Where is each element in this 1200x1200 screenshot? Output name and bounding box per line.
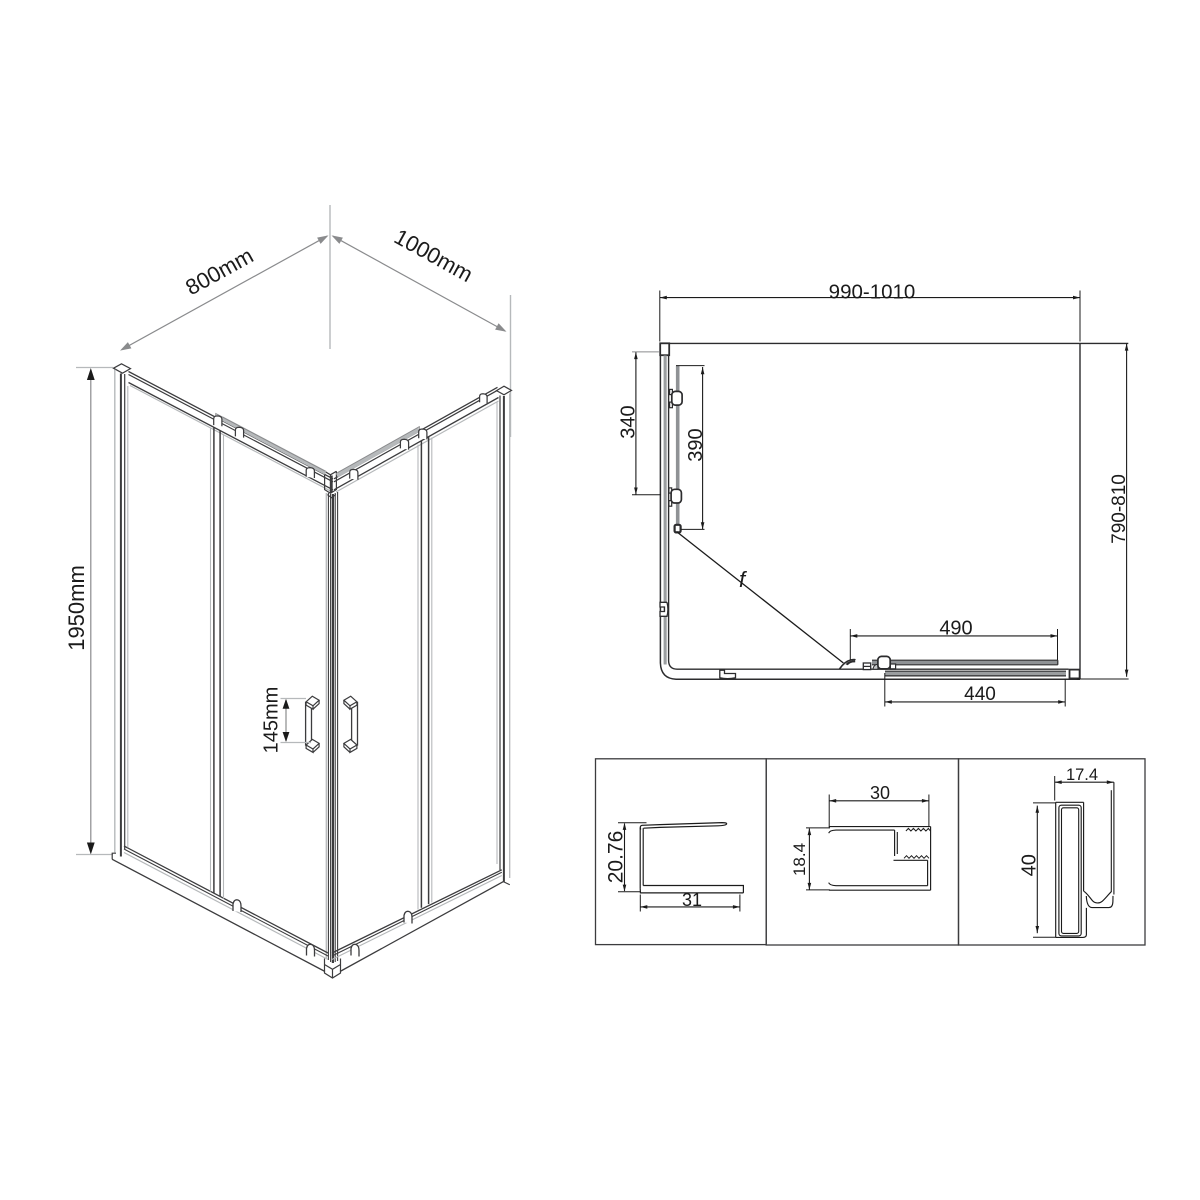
- svg-text:20.76: 20.76: [605, 831, 628, 884]
- svg-text:440: 440: [964, 684, 996, 705]
- svg-text:145mm: 145mm: [261, 687, 283, 754]
- svg-text:1950mm: 1950mm: [64, 565, 89, 651]
- svg-text:30: 30: [870, 783, 890, 803]
- svg-text:18.4: 18.4: [790, 843, 809, 876]
- svg-text:390: 390: [685, 428, 707, 461]
- svg-text:490: 490: [939, 618, 972, 640]
- svg-text:40: 40: [1019, 854, 1041, 876]
- svg-text:340: 340: [618, 405, 640, 438]
- svg-text:790-810: 790-810: [1109, 474, 1130, 544]
- svg-text:31: 31: [682, 890, 702, 910]
- svg-text:990-1010: 990-1010: [829, 281, 916, 304]
- svg-text:17.4: 17.4: [1066, 766, 1098, 784]
